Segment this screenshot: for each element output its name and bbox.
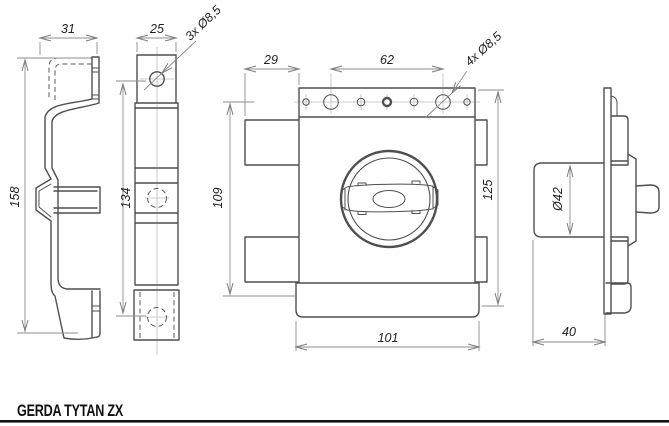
lock-technical-drawing: 31 158 25 134 3x Ø8,5 [0,0,669,426]
dim-label-overall-height: 125 [481,180,495,201]
faceplate-outline [604,88,611,314]
bracket-side-outline [36,57,100,339]
knob-side-cone [628,154,636,246]
dim-label-plate-height: 134 [119,188,133,209]
dim-label-bracket-height: 158 [8,187,22,208]
callout-label-3x-holes: 3x Ø8,5 [183,3,224,44]
flange-screw-hole [383,98,391,106]
knob-grip [341,181,438,215]
knob-outer-ring [341,151,437,247]
callout-label-4x-holes: 4x Ø8,5 [462,29,504,69]
faceplate-top-step [611,96,617,116]
bracket-front-view: 25 134 3x Ø8,5 [116,3,224,355]
knob-center-oval [373,191,405,208]
dim-label-plate-width: 25 [149,22,164,36]
bracket-side-shelf [54,187,100,213]
bracket-side-bend-ticks [39,68,100,311]
footer-rule [0,420,669,423]
lock-side-view: Ø42 40 [533,88,659,346]
technical-drawing-page: 31 158 25 134 3x Ø8,5 [0,0,669,426]
lock-body-outline [245,117,487,317]
bracket-front-outline [134,55,179,340]
cylinder-body [534,163,604,237]
dim-label-tab-offset: 29 [263,53,278,67]
upper-block [611,116,628,165]
dim-label-knob-diameter: Ø42 [551,187,565,212]
dim-label-hole-spacing: 62 [380,53,394,67]
dim-label-base-width: 101 [378,331,399,345]
dim-label-bracket-width: 31 [61,22,75,36]
bottom-foot [606,283,631,313]
product-title: GERDA TYTAN ZX [17,401,124,420]
knob-inner-ring [348,158,430,240]
leader-3x-holes [162,41,196,73]
knob-side-grip [636,185,659,213]
leader-4x-holes [452,71,467,93]
bracket-side-view: 31 158 [8,22,100,339]
dim-label-depth: 40 [562,325,576,339]
bracket-front-centerlines [140,47,174,355]
dim-label-body-height: 109 [211,188,225,209]
lower-block [611,237,628,284]
bracket-side-hidden-flap [49,58,92,100]
lock-front-view: 29 62 4x Ø8,5 109 125 101 [211,29,504,351]
